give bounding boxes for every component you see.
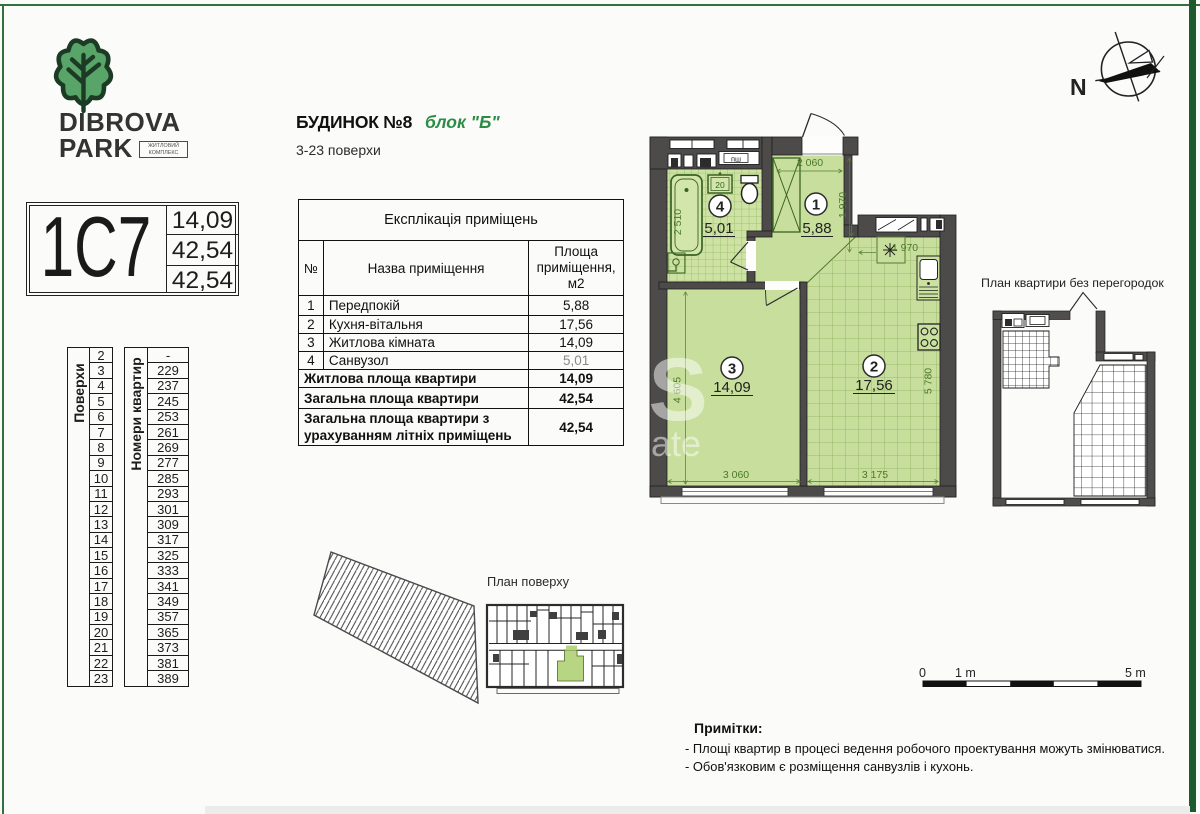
svg-text:N: N [1070, 74, 1087, 100]
svg-text:4: 4 [716, 199, 725, 216]
svg-text:5,01: 5,01 [704, 220, 733, 237]
svg-text:пш: пш [731, 155, 741, 164]
svg-text:0: 0 [919, 666, 926, 680]
svg-text:5,88: 5,88 [802, 220, 831, 237]
svg-text:2 060: 2 060 [797, 157, 823, 169]
svg-text:1 m: 1 m [955, 666, 976, 680]
svg-text:5 780: 5 780 [923, 368, 935, 394]
svg-text:14,09: 14,09 [713, 379, 751, 396]
svg-text:2 510: 2 510 [672, 209, 684, 235]
svg-text:1 970: 1 970 [892, 242, 918, 254]
svg-text:17,56: 17,56 [855, 377, 893, 394]
svg-text:ate: ate [651, 423, 701, 464]
svg-text:3 175: 3 175 [862, 469, 888, 481]
svg-text:20: 20 [715, 180, 725, 190]
svg-text:2: 2 [870, 359, 878, 376]
svg-text:3 060: 3 060 [723, 469, 749, 481]
svg-text:1: 1 [812, 197, 820, 214]
svg-text:1 970: 1 970 [837, 192, 849, 218]
svg-text:3: 3 [728, 361, 736, 378]
svg-text:5 m: 5 m [1125, 666, 1146, 680]
